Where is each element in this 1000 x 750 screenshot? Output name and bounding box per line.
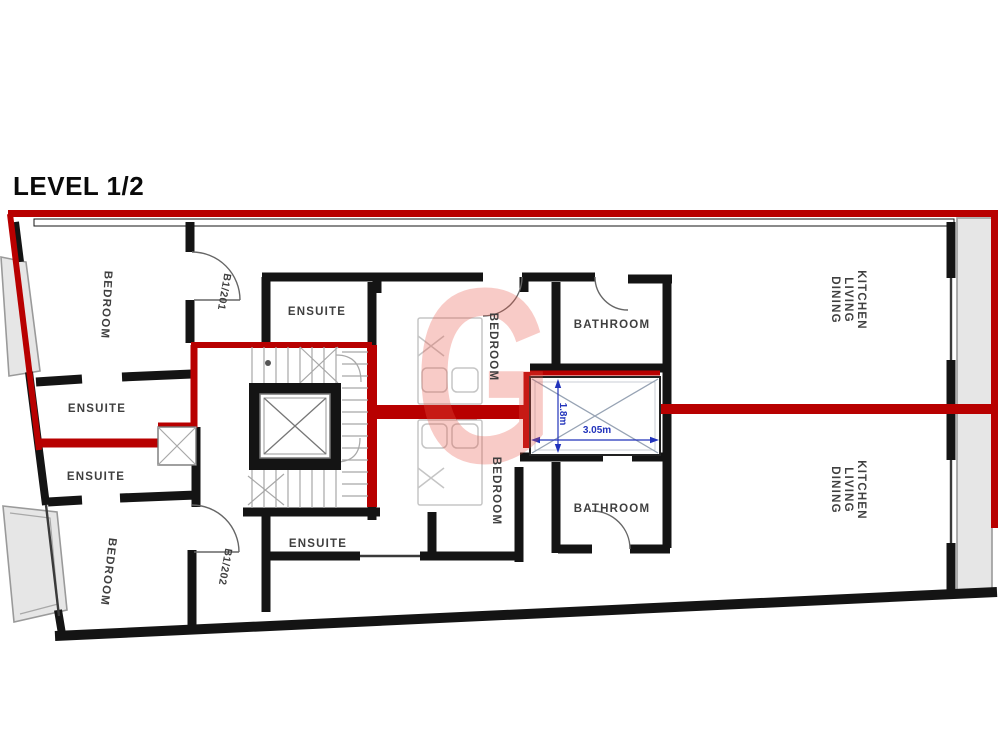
- room-label-ensuite-left-1: ENSUITE: [68, 403, 126, 415]
- kld-bottom-line3: DINING: [829, 466, 841, 513]
- outer-right-red: [991, 210, 998, 528]
- room-label-bedroom-top-left: BEDROOM: [98, 270, 114, 339]
- door-arc-bathroom-bottom: [592, 511, 630, 549]
- room-label-bathroom-top: BATHROOM: [574, 319, 650, 331]
- kld-top-line3: DINING: [829, 276, 841, 323]
- kld-top-line1: KITCHEN: [855, 270, 867, 330]
- room-label-ensuite-bottom-center: ENSUITE: [289, 538, 347, 550]
- room-label-bedroom-mid-lower: BEDROOM: [490, 457, 502, 525]
- watermark-letter: G: [414, 237, 554, 516]
- kld-bottom-line1: KITCHEN: [855, 460, 867, 520]
- room-label-ensuite-left-2: ENSUITE: [67, 471, 125, 483]
- room-label-ensuite-top-center: ENSUITE: [288, 306, 346, 318]
- unit-label-b1-201: B1/201: [215, 272, 233, 311]
- dim-label-width: 3.05m: [583, 425, 611, 436]
- dim-label-depth: 1.8m: [557, 403, 568, 426]
- unit-divider-right: [658, 404, 998, 414]
- unit-label-b1-202: B1/202: [216, 547, 234, 586]
- room-label-bedroom-mid-upper: BEDROOM: [487, 313, 499, 381]
- outer-top-red: [8, 210, 998, 217]
- floor-plan-drawing: 3.05m 1.8m G BEDROOM B1/201 ENSUITE ENSU…: [0, 0, 1000, 750]
- stair-core: [248, 347, 368, 508]
- room-label-bathroom-bottom: BATHROOM: [574, 503, 650, 515]
- room-label-kitchen-living-dining-bottom: KITCHEN LIVING DINING: [829, 460, 867, 520]
- kld-bottom-line2: LIVING: [842, 467, 854, 513]
- stair-post: [265, 360, 271, 366]
- duct-box: [158, 427, 196, 465]
- door-arc-bathroom-top: [595, 277, 628, 310]
- top-inner-wall: [34, 219, 954, 226]
- floor-plan-page: LEVEL 1/2: [0, 0, 1000, 750]
- room-label-kitchen-living-dining-top: KITCHEN LIVING DINING: [829, 270, 867, 330]
- room-label-bedroom-bottom-left: BEDROOM: [98, 537, 118, 606]
- door-arc-b1-202: [192, 505, 239, 552]
- kld-top-line2: LIVING: [842, 277, 854, 323]
- elevator: [249, 383, 341, 470]
